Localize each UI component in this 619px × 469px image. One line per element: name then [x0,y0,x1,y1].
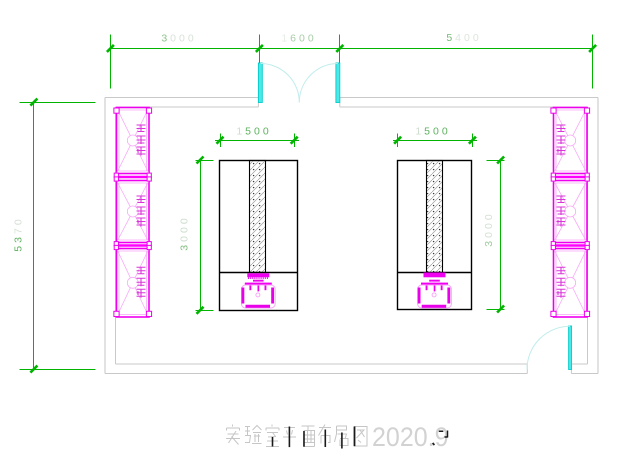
svg-text:1600: 1600 [281,33,316,45]
svg-text:1500: 1500 [236,126,271,138]
svg-text:3000: 3000 [161,33,196,45]
svg-text:2020.9: 2020.9 [372,422,449,452]
svg-text:5370: 5370 [13,216,25,251]
svg-text:3000: 3000 [483,211,495,246]
svg-text:1500: 1500 [415,126,450,138]
svg-text:3000: 3000 [179,215,191,250]
svg-text:5400: 5400 [446,32,481,44]
